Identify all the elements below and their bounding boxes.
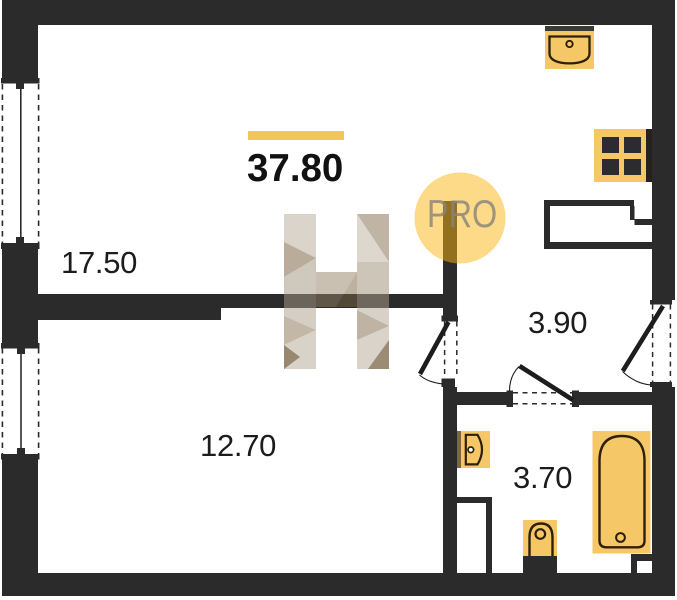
svg-text:17.50: 17.50 (61, 245, 137, 280)
svg-text:3.90: 3.90 (528, 305, 587, 340)
svg-text:12.70: 12.70 (200, 428, 276, 463)
svg-text:3.70: 3.70 (513, 460, 572, 495)
svg-text:37.80: 37.80 (247, 147, 343, 190)
svg-text:PRO: PRO (427, 192, 497, 236)
